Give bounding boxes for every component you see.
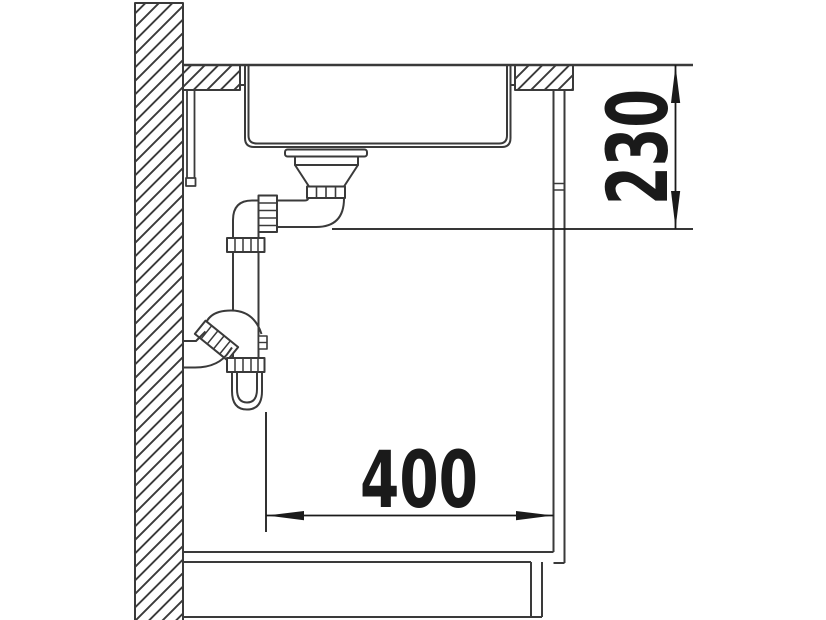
trap-cup: [232, 372, 262, 410]
siphon-trap: [183, 311, 267, 410]
arrow-left-icon: [267, 511, 304, 520]
angled-coupling-nut: [195, 321, 238, 361]
pipe-clip: [259, 336, 268, 349]
wall-section: [135, 3, 183, 620]
drain-pipe: [227, 196, 344, 359]
union-nut-upper: [227, 238, 265, 252]
panel-joint: [554, 184, 565, 191]
dimension-400-label: 400: [360, 436, 478, 526]
union-nut-lower: [227, 358, 265, 372]
cabinet-bottom: [183, 552, 554, 562]
dimension-400: 400: [266, 412, 554, 532]
dimension-230-label: 230: [589, 89, 687, 205]
rear-batten: [186, 90, 196, 186]
technical-drawing-canvas: 230 400: [0, 0, 826, 620]
tailpiece-nut: [307, 187, 345, 199]
union-nut-horizontal: [259, 196, 278, 233]
arrow-right-icon: [516, 511, 553, 520]
cabinet-plinth: [183, 562, 542, 617]
sink-installation-diagram: 230 400: [0, 0, 826, 620]
countertop: [183, 65, 693, 90]
sink-bowl: [245, 65, 511, 147]
drain-strainer: [285, 150, 367, 199]
cabinet-side-panel: [554, 90, 565, 563]
